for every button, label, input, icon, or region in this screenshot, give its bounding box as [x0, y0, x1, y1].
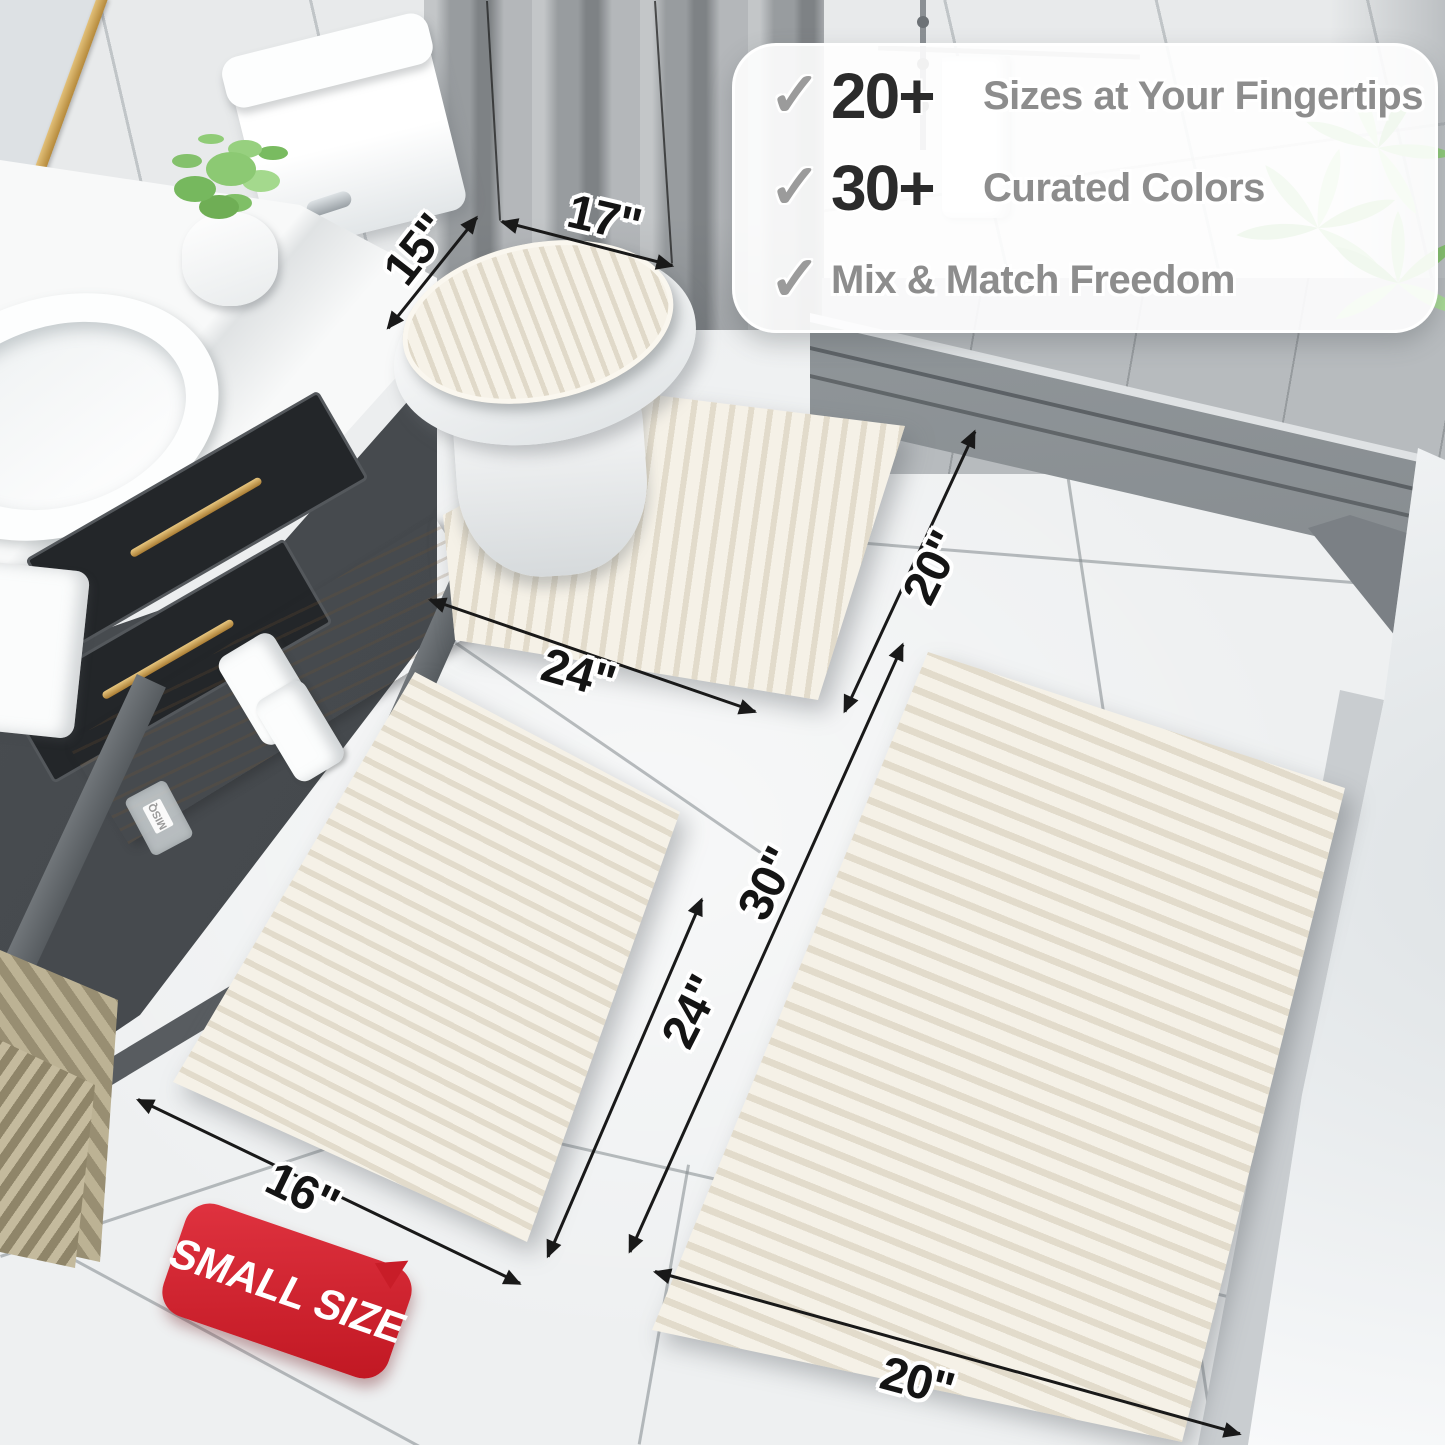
callout-label: Mix & Match Freedom: [831, 258, 1235, 303]
bottle-label: MISQ: [142, 798, 174, 834]
bathroom-product-photo: MISQ: [0, 0, 1445, 1445]
feature-callout: ✓ 20+ Sizes at Your Fingertips ✓ 30+ Cur…: [732, 43, 1438, 333]
callout-value: 30+: [831, 151, 983, 225]
callout-value: 20+: [831, 59, 983, 133]
rack-knob: [917, 16, 929, 28]
potted-plant: [206, 152, 256, 186]
gold-drawer-handle: [129, 477, 263, 559]
callout-row: ✓ 30+ Curated Colors: [769, 146, 1435, 230]
callout-row: ✓ Mix & Match Freedom: [769, 238, 1435, 322]
check-icon: ✓: [769, 157, 831, 219]
check-icon: ✓: [769, 249, 831, 311]
check-icon: ✓: [769, 65, 831, 127]
callout-label: Sizes at Your Fingertips: [983, 74, 1423, 119]
callout-label: Curated Colors: [983, 166, 1265, 211]
callout-row: ✓ 20+ Sizes at Your Fingertips: [769, 54, 1435, 138]
plant-pot: [182, 212, 278, 306]
